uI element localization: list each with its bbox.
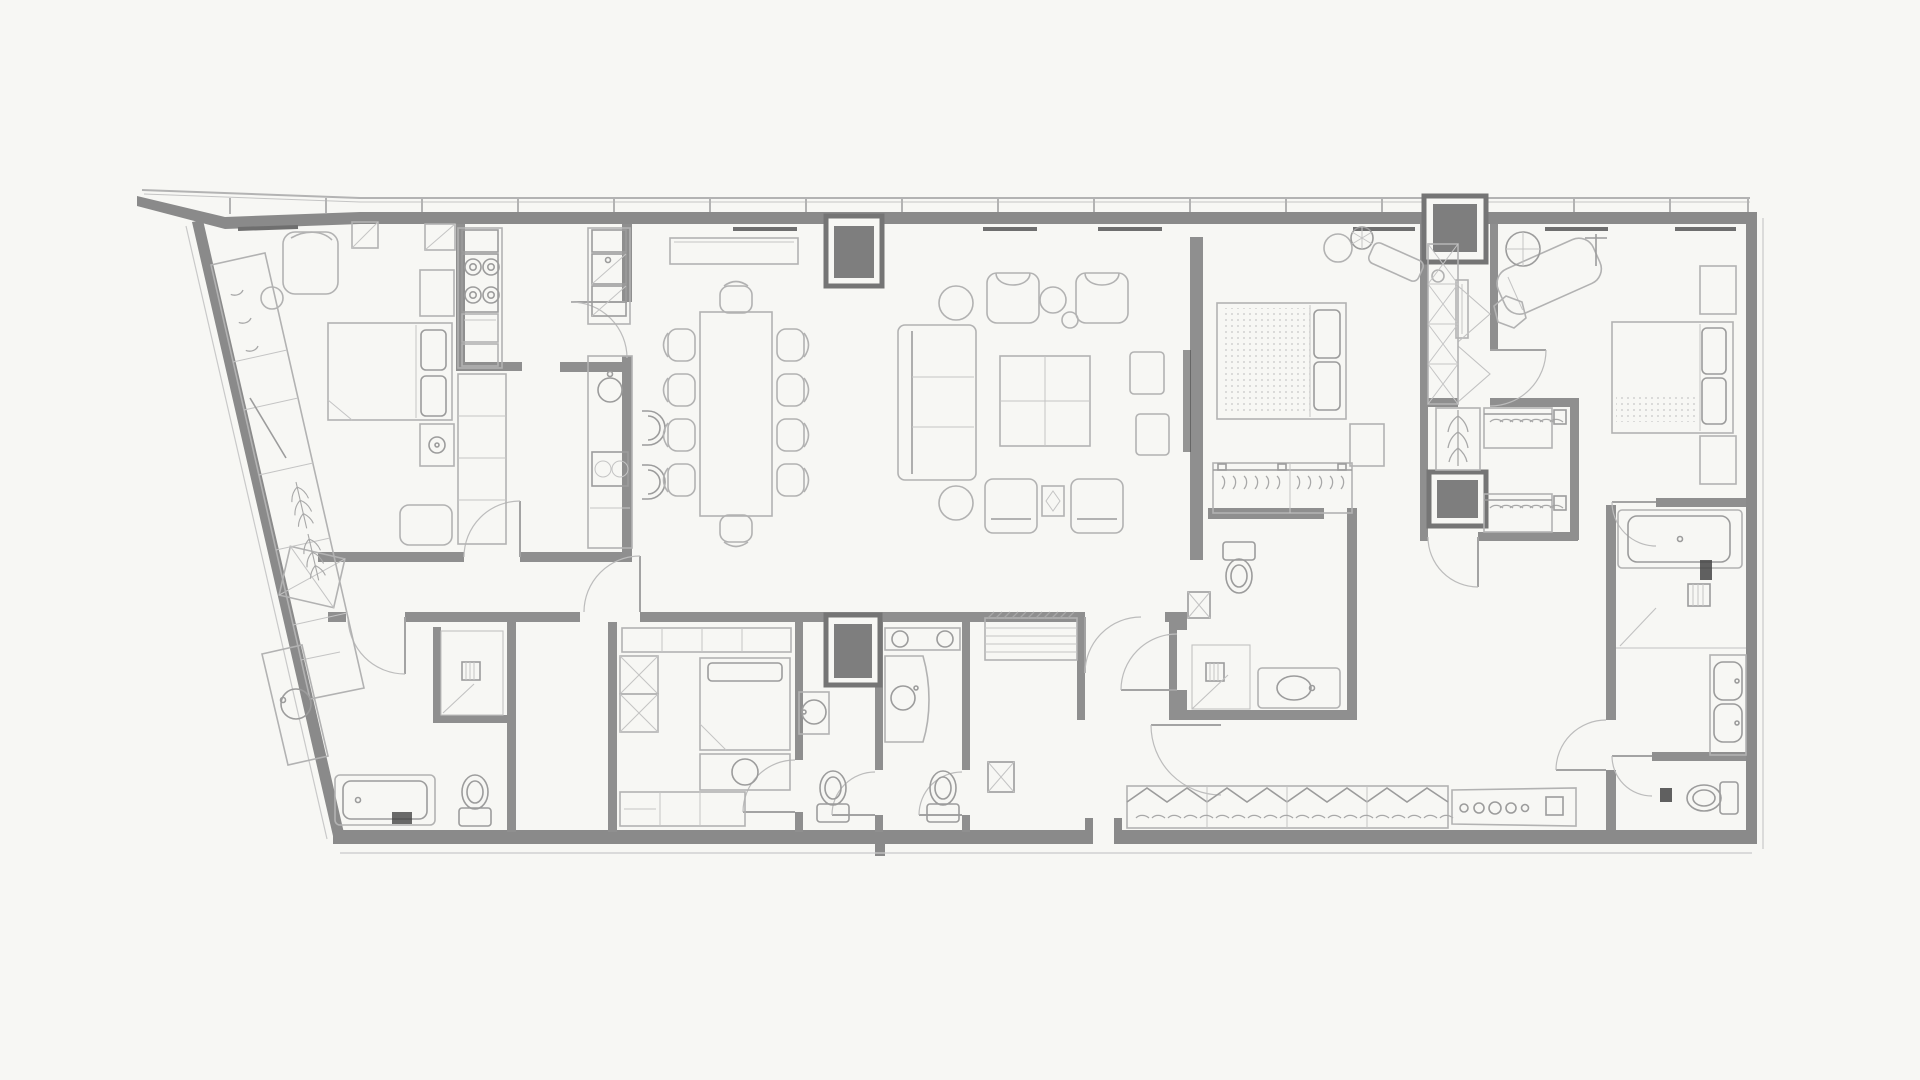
master-bath-south-wall bbox=[1177, 710, 1357, 720]
round-pouf-icon bbox=[939, 286, 973, 320]
shaft-north-east bbox=[1424, 196, 1486, 282]
double-vanity-icon bbox=[1710, 655, 1746, 755]
guest-suite-door bbox=[348, 617, 405, 674]
bath-mat bbox=[392, 812, 412, 824]
corner-bedroom bbox=[261, 222, 455, 608]
mullion-ticks bbox=[230, 198, 1748, 214]
living bbox=[898, 273, 1191, 533]
shadow-line-west bbox=[186, 226, 327, 839]
ensuite-west-wall-a bbox=[1606, 505, 1616, 720]
end-shelf bbox=[1554, 496, 1566, 510]
floor-plan-drawing: Residential apartment floor plan – archi… bbox=[0, 0, 1920, 1080]
shaft-walk-in-closet bbox=[1429, 472, 1486, 526]
corridor-west-wall bbox=[1077, 612, 1085, 720]
closet-east-wall bbox=[1570, 398, 1579, 540]
nook-table-icon bbox=[1324, 234, 1352, 262]
bottom-exterior-wall-west bbox=[333, 830, 1085, 844]
ottoman-icon bbox=[1071, 479, 1123, 533]
south-band-wall-d bbox=[640, 612, 980, 622]
pillow-icon bbox=[421, 376, 446, 416]
curved-vanity-icon bbox=[885, 656, 929, 742]
shower-partition-h bbox=[441, 715, 515, 723]
accessory-tray bbox=[1546, 797, 1563, 815]
west-angled-wall bbox=[192, 220, 344, 836]
shower-zone-icon bbox=[1616, 584, 1746, 648]
corridor-opening-door bbox=[1085, 617, 1141, 673]
pillow-icon bbox=[708, 663, 782, 681]
hangers bbox=[1136, 815, 1453, 818]
bath-mat bbox=[1700, 560, 1712, 580]
powder-bathroom bbox=[885, 628, 1014, 822]
kitchen bbox=[458, 228, 665, 548]
staff-room-door bbox=[743, 760, 795, 812]
island-counter bbox=[458, 374, 506, 544]
cooktop-icon bbox=[462, 254, 499, 312]
closet-north-wall-a bbox=[1420, 398, 1458, 407]
exterior-walls bbox=[137, 196, 1763, 856]
staff-bath-door bbox=[832, 772, 875, 815]
sideboard-icon bbox=[670, 238, 798, 264]
basin-icon bbox=[799, 692, 829, 734]
dining-table-icon bbox=[700, 312, 772, 516]
bed-runner bbox=[1616, 396, 1696, 422]
corner-bedroom-door bbox=[464, 501, 520, 557]
media-cabinet-icon bbox=[620, 792, 745, 826]
nightstand-icon bbox=[1700, 436, 1736, 484]
master-bath-east-wall bbox=[1347, 508, 1357, 720]
patterned-stool-icon bbox=[1136, 414, 1169, 455]
patterned-stool-icon bbox=[1130, 352, 1164, 394]
staff-east-wall-b bbox=[795, 812, 803, 832]
interior-walls bbox=[318, 224, 1746, 832]
wardrobe-counter bbox=[622, 628, 791, 652]
hanging-rail-bottom bbox=[1484, 494, 1563, 532]
coat-hooks bbox=[231, 290, 259, 353]
staff-west-wall bbox=[608, 622, 617, 832]
double-bed-icon bbox=[328, 323, 452, 420]
floor-mat bbox=[1660, 788, 1672, 802]
staff-room bbox=[620, 628, 791, 826]
standing-mirror-icon bbox=[1506, 232, 1540, 266]
walk-in-closet-door bbox=[1428, 537, 1478, 587]
long-hang-section bbox=[288, 480, 327, 582]
vanity-counter bbox=[1452, 788, 1576, 826]
master-bathroom bbox=[1188, 542, 1340, 709]
kitchen-east-wall-lower bbox=[622, 356, 632, 562]
ensuite-corridor-door bbox=[1556, 720, 1606, 770]
staff-east-wall-a bbox=[795, 622, 803, 760]
cross-cabinet-icon bbox=[620, 656, 658, 732]
ensuite-west-wall-b bbox=[1606, 770, 1616, 830]
wc-partition-wall bbox=[1652, 752, 1746, 761]
extractor-hood-icon bbox=[462, 230, 498, 252]
closet-south-wall-b bbox=[1478, 532, 1578, 541]
entry-notch-stub-left bbox=[1085, 818, 1093, 844]
master-bath-door bbox=[1121, 634, 1177, 690]
pillow-icon bbox=[1702, 378, 1726, 424]
vanity-icon bbox=[1258, 668, 1340, 708]
dressing-stool-icon bbox=[1494, 296, 1526, 328]
occasional-table-icon bbox=[1042, 486, 1064, 516]
side-table-icon bbox=[261, 287, 283, 309]
master-bedroom bbox=[1213, 227, 1425, 513]
dining-chairs bbox=[664, 282, 809, 547]
glazing-line-outer bbox=[142, 190, 1750, 198]
bath-divider-1b bbox=[875, 815, 883, 832]
sofa-icon bbox=[898, 325, 976, 480]
wc-room-door bbox=[1612, 756, 1652, 796]
east-bedroom bbox=[1428, 232, 1736, 484]
bathtub-icon bbox=[335, 775, 435, 825]
double-basin-counter bbox=[885, 628, 960, 650]
side-table-icon bbox=[1062, 312, 1078, 328]
desk-chair-icon bbox=[700, 754, 790, 790]
bottom-exterior-wall-east bbox=[1122, 830, 1757, 844]
double-sink-icon bbox=[592, 254, 626, 316]
tv-icon bbox=[1183, 350, 1191, 452]
long-hang-column bbox=[1436, 408, 1480, 470]
oven-icon bbox=[462, 314, 498, 342]
coffee-table-icon bbox=[1000, 356, 1090, 446]
ottoman-icon bbox=[985, 479, 1037, 533]
nightstand-icon bbox=[1700, 266, 1736, 314]
living-partition-wall bbox=[1190, 237, 1203, 560]
toilet-icon bbox=[459, 775, 491, 826]
shower-partition-v bbox=[433, 627, 441, 723]
right-exterior-wall bbox=[1746, 212, 1757, 844]
double-bed-icon bbox=[1612, 322, 1733, 433]
bedroom-south-wall-east bbox=[520, 552, 632, 562]
dressing-corridor bbox=[1127, 786, 1576, 828]
closet-south-wall-a bbox=[1420, 532, 1428, 541]
mirror-door-diamonds bbox=[1458, 286, 1490, 402]
ensuite-north-wall bbox=[1656, 498, 1746, 507]
pillow-icon bbox=[421, 330, 446, 370]
pillow-icon bbox=[1314, 310, 1340, 358]
threshold-tab bbox=[875, 842, 885, 856]
floor-plan-page: Residential apartment floor plan – archi… bbox=[0, 0, 1920, 1080]
nightstand-icon bbox=[1350, 424, 1384, 466]
single-bed-icon bbox=[700, 658, 790, 750]
double-bed-icon bbox=[1217, 303, 1346, 419]
bench-icon bbox=[1367, 241, 1425, 283]
shower-icon bbox=[1192, 645, 1250, 709]
master-bath-west-stub-b bbox=[1177, 690, 1187, 720]
master-bath-west-stub-a bbox=[1177, 612, 1187, 630]
pillow-icon bbox=[1702, 328, 1726, 374]
shaft-north-center bbox=[826, 216, 882, 286]
armchairs bbox=[987, 273, 1128, 323]
drawer-line bbox=[301, 652, 340, 660]
bath-divider-2b bbox=[962, 815, 970, 832]
east-bedroom-door bbox=[1490, 350, 1546, 406]
ensuite-bathroom bbox=[1616, 510, 1746, 814]
valet-stand-icon bbox=[1585, 234, 1607, 266]
duct-icon bbox=[1188, 592, 1210, 618]
dining bbox=[664, 238, 809, 547]
lattice-wardrobe bbox=[1428, 244, 1458, 404]
bath-divider-2a bbox=[962, 622, 970, 770]
hanging-rail-top bbox=[1484, 408, 1563, 448]
duct-icon bbox=[988, 762, 1014, 792]
wall-cabinet-icon bbox=[425, 224, 455, 250]
vestibule-door bbox=[584, 556, 640, 612]
toilet-icon bbox=[1687, 782, 1738, 814]
wc-room bbox=[1660, 782, 1738, 814]
toilet-icon bbox=[1223, 542, 1255, 593]
entry-notch-stub-right bbox=[1114, 818, 1122, 844]
shaft-south-center bbox=[826, 615, 880, 685]
armchair-icon bbox=[283, 232, 338, 294]
garment-racks bbox=[1127, 786, 1453, 828]
pillow-icon bbox=[1314, 362, 1340, 410]
dresser-icon bbox=[420, 270, 454, 316]
open-closet-rail bbox=[1213, 463, 1352, 513]
closet-north-wall-b bbox=[1490, 398, 1578, 407]
staff-bathroom bbox=[799, 692, 849, 822]
round-pouf-icon bbox=[939, 486, 973, 520]
south-band-wall-c bbox=[516, 612, 580, 622]
dressing-hall-door bbox=[1151, 725, 1221, 795]
bench-icon bbox=[400, 505, 452, 545]
end-shelf bbox=[1554, 410, 1566, 424]
left-wall-tip bbox=[137, 196, 225, 229]
south-band-wall-b bbox=[405, 612, 516, 622]
plant-icon bbox=[1351, 227, 1373, 249]
chaise-longue-icon bbox=[1492, 233, 1607, 319]
hangers bbox=[1222, 476, 1344, 489]
shower-room-icon bbox=[441, 631, 503, 715]
side-table-icon bbox=[1040, 287, 1066, 313]
round-sink-icon bbox=[598, 378, 622, 402]
kitchen-mid-wall-east bbox=[560, 362, 632, 372]
corridor-east-wall bbox=[1169, 612, 1177, 720]
bar-stools bbox=[642, 411, 665, 499]
wall-cabinet-icon bbox=[352, 222, 378, 248]
bathtub-icon bbox=[1618, 510, 1742, 580]
nightstand-lamp-icon bbox=[420, 424, 454, 466]
wall-unit bbox=[592, 230, 626, 252]
